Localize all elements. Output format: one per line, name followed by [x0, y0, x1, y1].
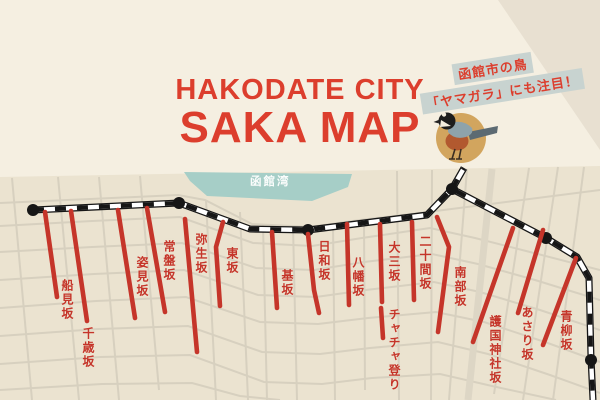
slope-label: 護国神社坂 — [487, 315, 504, 385]
slope-label: あさり坂 — [519, 306, 536, 362]
slope-line — [347, 224, 349, 305]
station-dot — [27, 204, 39, 216]
slope-label: 青柳坂 — [558, 310, 575, 352]
bird-beak — [434, 120, 440, 124]
slope-label: 八幡坂 — [350, 256, 367, 298]
slope-label: チャチャ登り — [386, 308, 403, 392]
slope-label: 千歳坂 — [80, 327, 97, 369]
station-dot — [446, 183, 458, 195]
slope-label: 大三坂 — [386, 241, 403, 283]
slope-label: 弥生坂 — [193, 233, 210, 275]
station-dot — [173, 197, 185, 209]
slope-label: 基坂 — [279, 269, 296, 297]
slope-label: 二十間坂 — [417, 235, 434, 291]
street — [364, 222, 365, 390]
yamagara-bird-icon — [428, 104, 504, 168]
title-line-saka-map: SAKA MAP — [0, 105, 600, 151]
slope-label: 南部坂 — [452, 266, 469, 308]
slope-line — [381, 308, 383, 338]
bay-label: 函館湾 — [250, 173, 291, 189]
slope-label: 日和坂 — [316, 240, 333, 282]
slope-label: 姿見坂 — [134, 256, 151, 298]
slope-label: 船見坂 — [59, 279, 76, 321]
slope-line — [380, 224, 382, 302]
station-dot — [585, 354, 597, 366]
slope-line — [412, 222, 414, 300]
bird-forehead-patch — [442, 112, 446, 116]
saka-map-poster: 船見坂千歳坂姿見坂常盤坂弥生坂東坂基坂日和坂八幡坂大三坂チャチャ登り二十間坂南部… — [0, 0, 600, 400]
slope-label: 常盤坂 — [161, 240, 178, 282]
slope-label: 東坂 — [224, 247, 241, 275]
